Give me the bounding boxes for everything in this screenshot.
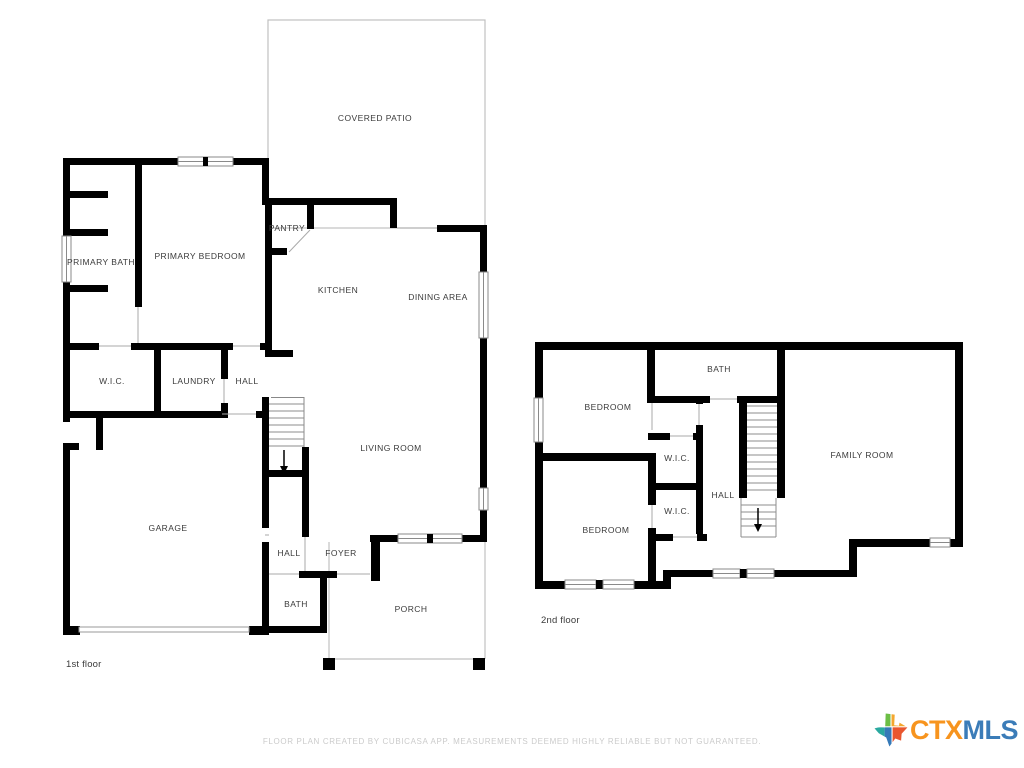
- room-label-bath-1st: BATH: [284, 599, 308, 609]
- room-label-kitchen: KITCHEN: [318, 285, 358, 295]
- room-label-covered-patio: COVERED PATIO: [338, 113, 412, 123]
- room-label-hall-2nd: HALL: [712, 490, 735, 500]
- logo-ctx: CTX: [910, 715, 963, 745]
- room-label-porch: PORCH: [395, 604, 428, 614]
- room-label-garage: GARAGE: [149, 523, 188, 533]
- floor1-garage-door: [79, 627, 249, 632]
- room-label-wic-bottom: W.I.C.: [664, 506, 690, 516]
- room-label-wic-top: W.I.C.: [664, 453, 690, 463]
- room-label-family-room: FAMILY ROOM: [831, 450, 894, 460]
- texas-state-icon: [874, 712, 908, 748]
- floorplan-page: COVERED PATIO PANTRY PRIMARY BATH PRIMAR…: [0, 0, 1024, 768]
- floor1-caption: 1st floor: [66, 659, 102, 670]
- room-label-hall-upper: HALL: [236, 376, 259, 386]
- room-label-foyer: FOYER: [325, 548, 356, 558]
- room-label-primary-bedroom: PRIMARY BEDROOM: [154, 251, 245, 261]
- floor2-caption: 2nd floor: [541, 615, 580, 626]
- floorplan-svg: [0, 0, 1024, 768]
- room-label-dining-area: DINING AREA: [408, 292, 467, 302]
- floor1-walls: [63, 158, 487, 670]
- room-label-laundry: LAUNDRY: [172, 376, 215, 386]
- room-label-hall-lower: HALL: [278, 548, 301, 558]
- ctxmls-logo: CTXMLS: [874, 710, 1018, 750]
- room-label-living-room: LIVING ROOM: [360, 443, 421, 453]
- logo-text: CTXMLS: [910, 717, 1018, 744]
- room-label-bath-2nd: BATH: [707, 364, 731, 374]
- room-label-primary-bath: PRIMARY BATH: [67, 257, 135, 267]
- room-label-bedroom-bottom: BEDROOM: [583, 525, 630, 535]
- room-label-wic-1st: W.I.C.: [99, 376, 125, 386]
- floor1-stairs: [269, 397, 304, 474]
- room-label-pantry: PANTRY: [269, 223, 305, 233]
- floor2-walls: [535, 342, 963, 589]
- logo-mls: MLS: [963, 715, 1019, 745]
- room-label-bedroom-top: BEDROOM: [585, 402, 632, 412]
- disclaimer-text: FLOOR PLAN CREATED BY CUBICASA APP. MEAS…: [0, 737, 1024, 746]
- floor2-openings: [652, 399, 737, 537]
